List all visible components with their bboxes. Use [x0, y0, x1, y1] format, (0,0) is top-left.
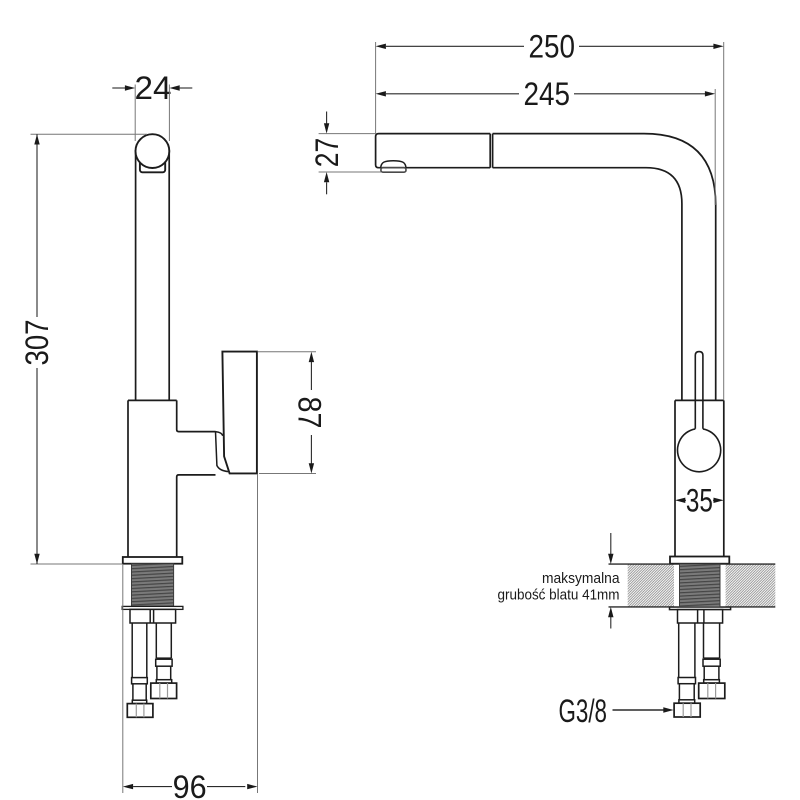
svg-text:maksymalna: maksymalna — [542, 570, 620, 587]
svg-text:250: 250 — [529, 29, 576, 65]
svg-text:87: 87 — [291, 397, 327, 429]
svg-text:G3/8: G3/8 — [559, 693, 608, 729]
svg-text:96: 96 — [173, 769, 207, 800]
svg-text:35: 35 — [686, 483, 713, 519]
svg-text:grubość blatu 41mm: grubość blatu 41mm — [498, 587, 620, 604]
svg-text:307: 307 — [19, 320, 55, 366]
svg-text:24: 24 — [135, 70, 172, 106]
svg-text:27: 27 — [309, 138, 345, 168]
svg-text:245: 245 — [524, 76, 571, 112]
